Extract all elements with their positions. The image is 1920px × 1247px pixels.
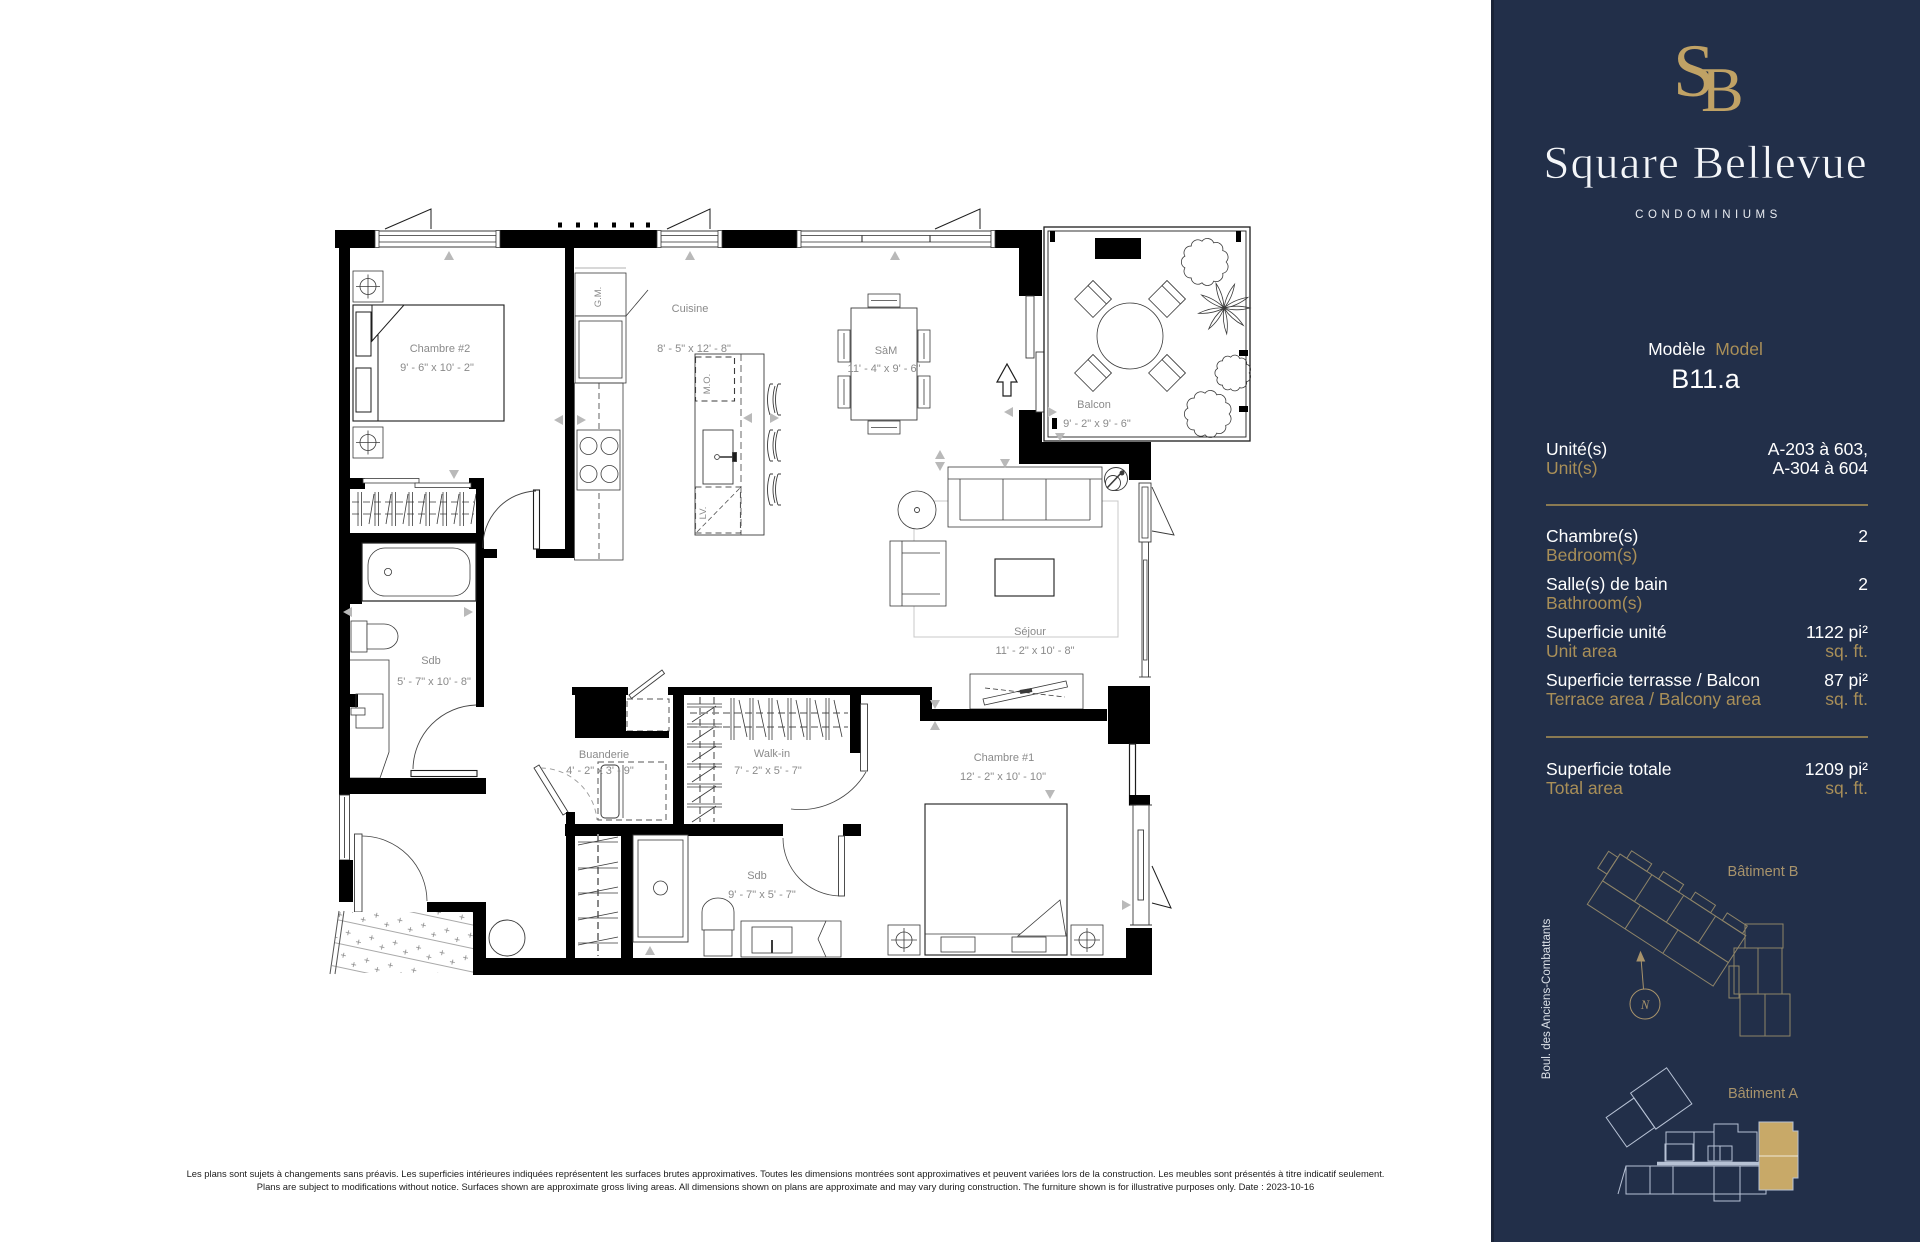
svg-text:7' - 2" x 5' - 7": 7' - 2" x 5' - 7": [734, 765, 802, 777]
svg-text:11' - 2" x 10' - 8": 11' - 2" x 10' - 8": [995, 645, 1074, 657]
svg-text:Sdb: Sdb: [747, 870, 767, 882]
svg-text:Balcon: Balcon: [1077, 399, 1111, 411]
svg-text:B: B: [1701, 54, 1744, 125]
svg-text:N: N: [1640, 998, 1650, 1012]
svg-text:11' - 4" x 9' - 6": 11' - 4" x 9' - 6": [848, 363, 921, 375]
svg-text:12' - 2" x 10' - 10": 12' - 2" x 10' - 10": [960, 771, 1046, 783]
svg-text:4' - 2" x 3' - 9": 4' - 2" x 3' - 9": [566, 765, 634, 777]
svg-text:G.M.: G.M.: [593, 287, 604, 308]
svg-text:Cuisine: Cuisine: [672, 303, 709, 315]
svg-text:8' - 5" x 12' - 8": 8' - 5" x 12' - 8": [657, 343, 731, 355]
svg-text:Bâtiment A: Bâtiment A: [1728, 1086, 1798, 1102]
svg-text:Sdb: Sdb: [421, 655, 441, 667]
svg-text:9' - 2" x 9' - 6": 9' - 2" x 9' - 6": [1063, 418, 1131, 430]
svg-text:9' - 6" x 10' - 2": 9' - 6" x 10' - 2": [400, 362, 474, 374]
svg-text:SàM: SàM: [875, 345, 898, 357]
svg-text:M.O.: M.O.: [702, 374, 713, 395]
svg-text:Boul. des Anciens-Combattants: Boul. des Anciens-Combattants: [1541, 919, 1553, 1080]
svg-text:LV.: LV.: [698, 507, 709, 520]
svg-text:Chambre #1: Chambre #1: [974, 752, 1035, 764]
svg-text:Chambre #2: Chambre #2: [410, 343, 471, 355]
svg-text:Walk-in: Walk-in: [754, 748, 790, 760]
svg-text:Bâtiment B: Bâtiment B: [1728, 864, 1799, 880]
svg-text:5' - 7" x 10' - 8": 5' - 7" x 10' - 8": [397, 676, 471, 688]
svg-text:Séjour: Séjour: [1014, 626, 1046, 638]
svg-text:Buanderie: Buanderie: [579, 749, 629, 761]
svg-text:9' - 7" x 5' - 7": 9' - 7" x 5' - 7": [728, 889, 796, 901]
